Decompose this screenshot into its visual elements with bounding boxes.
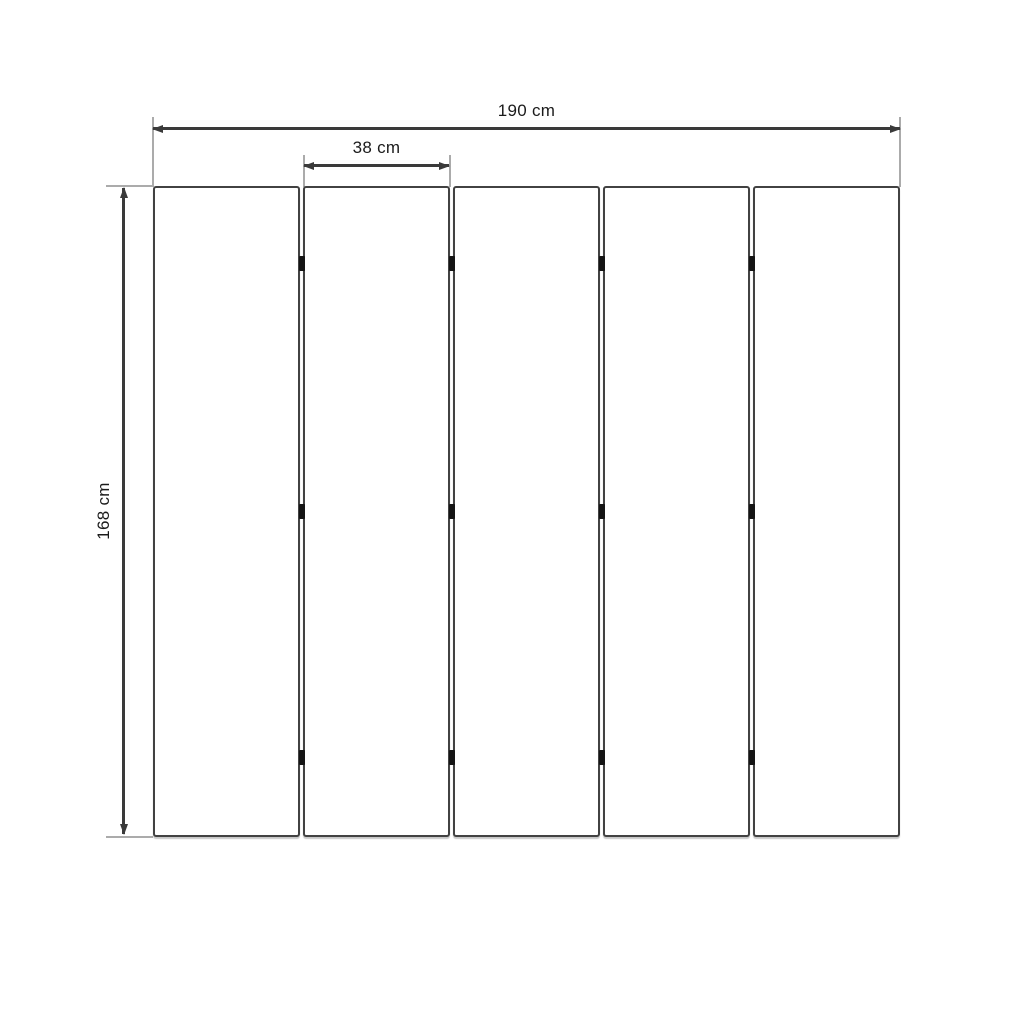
- hinge: [299, 256, 305, 271]
- arrowhead-left-icon: [152, 125, 163, 133]
- panel-width-dimension-line: [304, 164, 449, 167]
- screen-panel-1: [153, 186, 300, 837]
- total-width-label: 190 cm: [153, 100, 900, 122]
- screen-panel-4: [603, 186, 750, 837]
- arrowhead-down-icon: [120, 824, 128, 835]
- hinge: [599, 750, 605, 765]
- hinge: [749, 256, 755, 271]
- screen-panel-2: [303, 186, 450, 837]
- arrowhead-right-icon: [439, 162, 450, 170]
- hinge: [299, 750, 305, 765]
- total-width-dimension-line: [153, 127, 900, 130]
- hinge: [449, 504, 455, 519]
- screen-panel-3: [453, 186, 600, 837]
- hinge: [749, 504, 755, 519]
- hinge: [299, 504, 305, 519]
- hinge: [449, 750, 455, 765]
- extension-line-bottom: [106, 836, 153, 838]
- hinge: [599, 256, 605, 271]
- screen-panel-5: [753, 186, 900, 837]
- height-dimension-line: [122, 188, 125, 834]
- extension-line-right: [449, 155, 451, 187]
- arrowhead-up-icon: [120, 187, 128, 198]
- panel-width-label: 38 cm: [304, 137, 449, 159]
- arrowhead-right-icon: [890, 125, 901, 133]
- arrowhead-left-icon: [303, 162, 314, 170]
- extension-line-left: [303, 155, 305, 187]
- hinge: [449, 256, 455, 271]
- extension-line-top: [106, 185, 153, 187]
- hinge: [599, 504, 605, 519]
- folding-screen-diagram: 190 cm 38 cm 168 cm: [0, 0, 1024, 1024]
- height-label: 168 cm: [93, 471, 115, 551]
- hinge: [749, 750, 755, 765]
